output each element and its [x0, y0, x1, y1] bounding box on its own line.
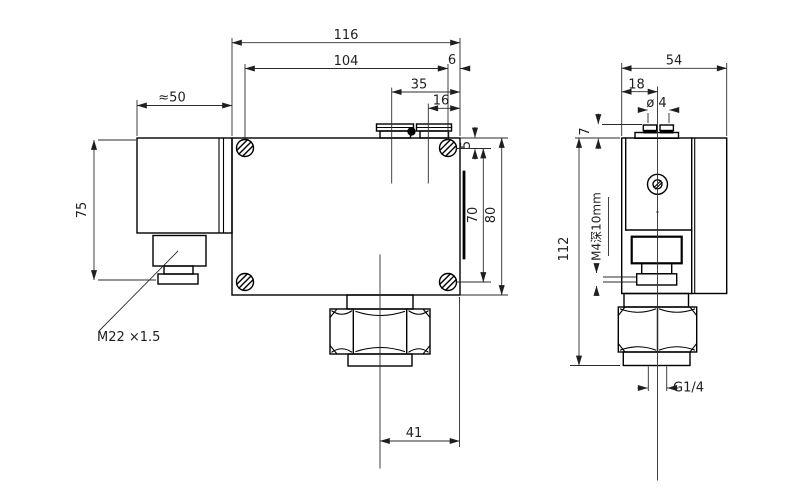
corner-screw-icon	[440, 140, 457, 157]
drawing-canvas: 116 104 6 35 16 ≈50 75	[0, 0, 800, 500]
dim-112-label: 112	[557, 237, 572, 262]
dim-terminal-b: 16	[428, 94, 460, 109]
label-pressure-port-thread: G1/4	[638, 381, 705, 396]
side-port-neck	[624, 294, 689, 308]
pressure-switch-technical-drawing: 116 104 6 35 16 ≈50 75	[0, 0, 800, 500]
front-view-dimensions: 116 104 6 35 16 ≈50 75	[75, 28, 508, 447]
g14-label: G1/4	[673, 381, 704, 396]
cable-gland-body	[153, 236, 206, 267]
corner-screw-icon	[237, 274, 254, 291]
side-cable-gland-body	[632, 237, 682, 264]
dim-70-label: 70	[466, 207, 481, 224]
dim-5-label: 5	[459, 141, 474, 149]
dim-connector-width: ≈50	[137, 91, 232, 106]
dim-80-label: 80	[484, 207, 499, 224]
side-view	[618, 87, 726, 480]
side-cable-gland-neck	[642, 263, 672, 274]
terminal-pin-dot	[407, 127, 415, 135]
dim-screw-center-offset: 18	[622, 78, 658, 93]
dim-screw-span-vertical: 70	[466, 149, 483, 283]
dim-overall-depth: 54	[622, 54, 727, 69]
front-connector-housing	[137, 138, 232, 233]
cable-gland-neck	[164, 266, 193, 274]
m4-note-label: M4深10mm	[590, 192, 604, 261]
front-body-outline	[232, 138, 460, 295]
dim-dia4-label: ø 4	[646, 96, 666, 111]
dim-50-label: ≈50	[158, 91, 185, 106]
label-cable-gland-thread: M22 ×1.5	[97, 251, 178, 345]
side-cable-gland-washer	[637, 274, 677, 285]
m22-label: M22 ×1.5	[97, 330, 160, 345]
dim-7-label: 7	[578, 127, 593, 135]
dim-104-label: 104	[334, 54, 359, 69]
side-terminal-screws	[635, 125, 679, 138]
dim-screw-span: 104	[245, 54, 448, 69]
dim-41-label: 41	[406, 426, 423, 441]
label-mounting-thread: M4深10mm	[590, 192, 637, 296]
side-view-dimensions: 54 18 ø 4 7 112 M4	[557, 54, 727, 396]
dim-connector-height: 75	[75, 140, 94, 280]
side-port-washer	[623, 352, 690, 366]
dim-overall-width: 116	[232, 28, 460, 43]
dim-terminal-head-height: 7	[578, 114, 598, 150]
dim-terminal-a: 35	[392, 78, 460, 93]
terminal-screw-right	[417, 124, 452, 138]
dim-screw-edge-offset: 6	[440, 53, 469, 69]
dim-terminal-screw-diameter: ø 4	[639, 96, 679, 111]
dim-35-label: 35	[411, 78, 428, 93]
dim-port-offset: 41	[380, 426, 460, 441]
front-view	[137, 88, 464, 468]
corner-screw-icon	[237, 140, 254, 157]
dim-overall-height: 80	[484, 138, 502, 295]
dim-total-height: 112	[557, 138, 579, 366]
dim-75-label: 75	[75, 202, 90, 219]
side-body-outline	[622, 138, 727, 294]
dim-screw-top-offset: 5	[459, 127, 475, 160]
dim-54-label: 54	[666, 54, 683, 69]
corner-screw-icon	[440, 274, 457, 291]
dim-116-label: 116	[334, 28, 359, 43]
dim-6-label: 6	[448, 53, 456, 68]
cable-gland-washer	[158, 274, 198, 284]
dim-16-label: 16	[433, 94, 450, 109]
dim-18-label: 18	[628, 78, 645, 93]
